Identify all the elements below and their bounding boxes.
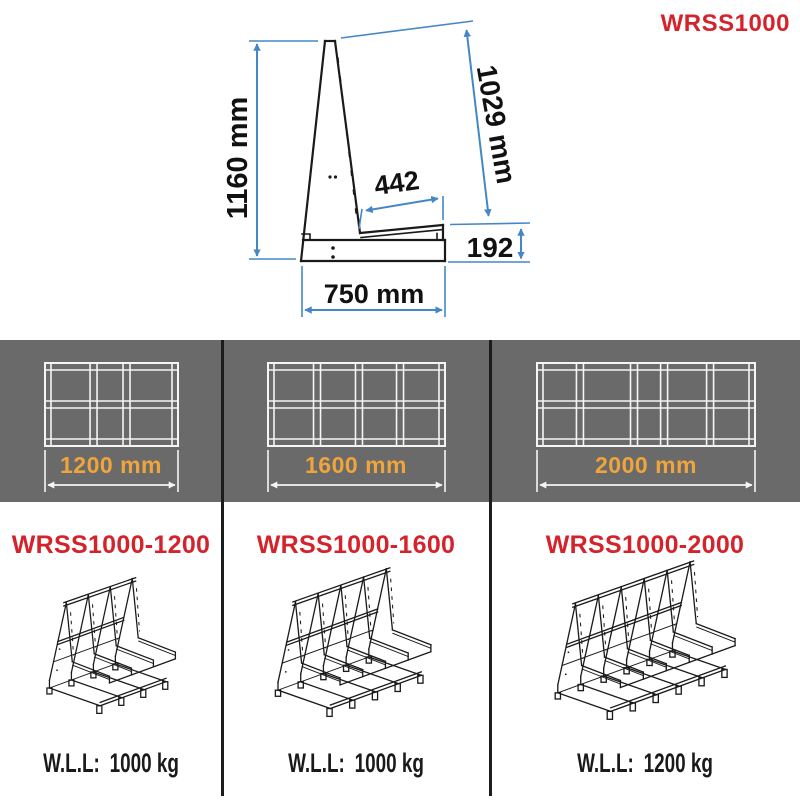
spec-sheet: 1160 mm 1029 mm 442 192 750 mm WRSS1000 … (0, 0, 800, 800)
dim-ledge-label: 442 (372, 165, 421, 201)
wll-label: W.L.L: (577, 748, 634, 778)
isometric-drawing-2000 (549, 553, 743, 722)
wll-label: W.L.L: (43, 748, 100, 778)
wll-1200kg: W.L.L:1200 kg (490, 748, 800, 779)
wll-1200: W.L.L:1000 kg (0, 748, 222, 779)
panel-divider-right (489, 340, 492, 796)
panel-divider-left (221, 340, 224, 796)
dim-height-label: 1160 mm (222, 97, 254, 220)
width-label-1600: 1600 mm (271, 452, 441, 479)
wll-label: W.L.L: (288, 748, 345, 778)
wll-value: 1200 kg (644, 748, 713, 778)
dim-back-height-label: 192 (467, 232, 514, 263)
dim-base-width-label: 750 mm (324, 279, 425, 309)
side-view-drawing: 1160 mm 1029 mm 442 192 750 mm (0, 0, 800, 340)
isometric-drawing-1200 (41, 570, 183, 716)
model-name-1600: WRSS1000-1600 (222, 531, 490, 560)
width-label-1200: 1200 mm (26, 452, 196, 479)
width-label-2000: 2000 mm (561, 452, 731, 479)
wll-1600: W.L.L:1000 kg (222, 748, 490, 779)
aframe-profile (301, 41, 445, 261)
model-name-1200: WRSS1000-1200 (0, 531, 222, 560)
wll-value: 1000 kg (355, 748, 424, 778)
wll-value: 1000 kg (110, 748, 179, 778)
isometric-drawing-1600 (269, 560, 439, 719)
product-code: WRSS1000 (540, 10, 790, 38)
profile-holes (328, 175, 337, 258)
